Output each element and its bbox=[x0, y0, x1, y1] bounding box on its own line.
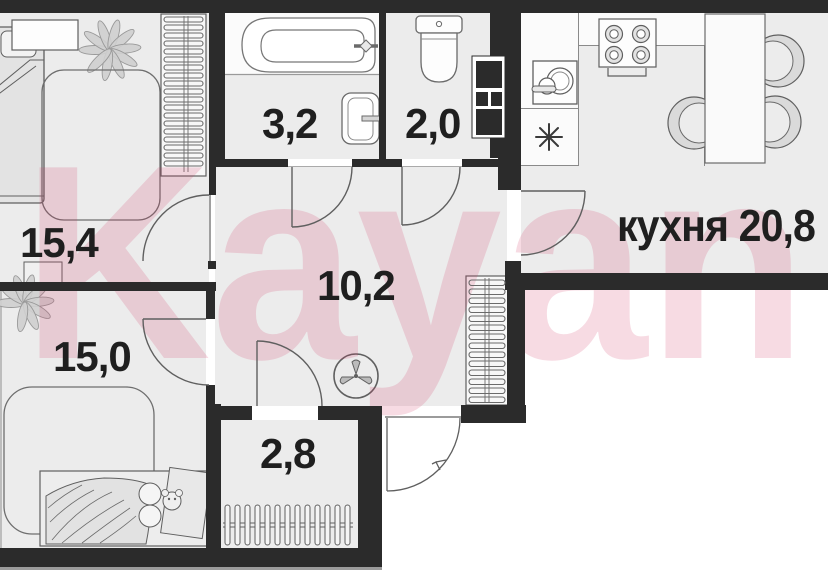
svg-text:15,4: 15,4 bbox=[20, 219, 99, 266]
svg-text:кухня 20,8: кухня 20,8 bbox=[617, 200, 815, 251]
svg-text:15,0: 15,0 bbox=[53, 333, 131, 380]
svg-text:2,0: 2,0 bbox=[405, 100, 460, 147]
svg-text:2,8: 2,8 bbox=[260, 430, 316, 477]
svg-text:10,2: 10,2 bbox=[317, 262, 395, 309]
svg-text:3,2: 3,2 bbox=[262, 100, 317, 147]
svg-text:Kayan: Kayan bbox=[22, 107, 807, 419]
